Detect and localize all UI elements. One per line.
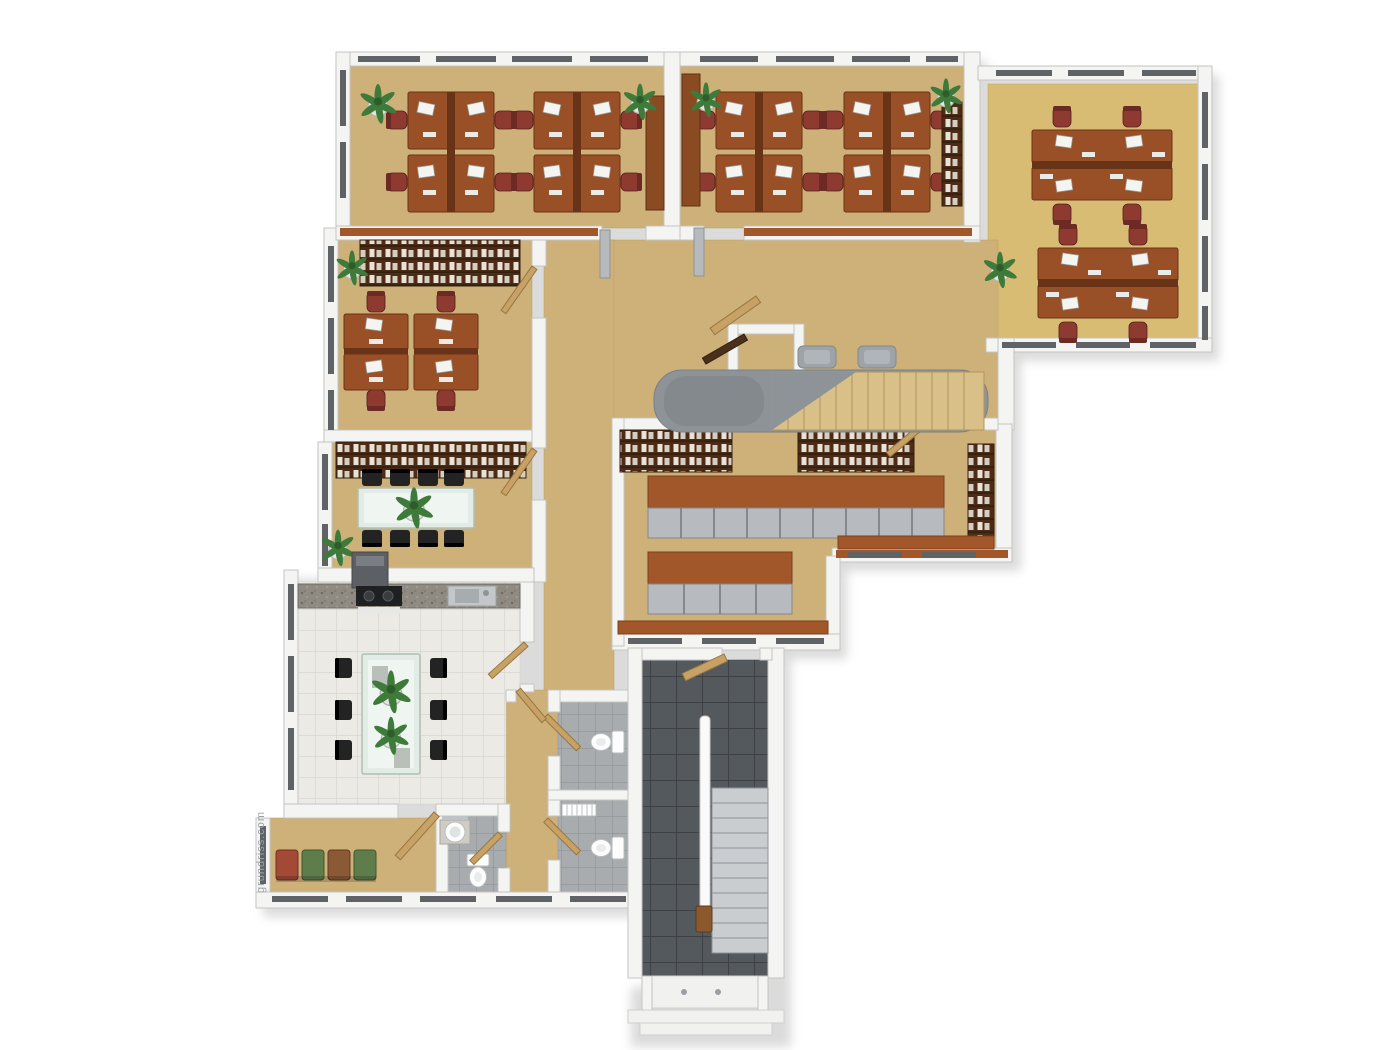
bench-cushion [864, 350, 890, 364]
floor-plan-page: grundriss.com [0, 0, 1400, 1050]
floor-corridor-vertical [544, 240, 614, 700]
placemat [394, 748, 410, 768]
conference-chair [362, 530, 382, 547]
waiting-chair [276, 850, 298, 880]
interior-staircase [654, 370, 988, 432]
bench-cushion [804, 350, 830, 364]
entrance-step [640, 1023, 772, 1035]
dining-chair [430, 740, 447, 760]
watermark-text: grundriss.com [255, 811, 267, 893]
partition-panel [600, 230, 610, 278]
partition-panel [694, 228, 704, 276]
dining-chair [430, 700, 447, 720]
handrail-wall [700, 716, 710, 912]
dining-chair [430, 658, 447, 678]
cooktop [356, 586, 402, 606]
dining-chair [335, 700, 352, 720]
waiting-chair [328, 850, 350, 880]
dining-chair [335, 740, 352, 760]
dining-chair [335, 658, 352, 678]
sideboard [618, 621, 828, 634]
floor-plan-svg: grundriss.com [0, 0, 1400, 1050]
conference-chair [418, 469, 438, 486]
stair-flight [712, 788, 768, 953]
wall-bookshelf [620, 430, 732, 472]
wall-cabinet-trim [744, 228, 972, 236]
cabinet-row-doors [648, 508, 944, 538]
wall-cabinet-trim [340, 228, 598, 236]
wall-bookshelf [968, 444, 994, 548]
bookshelf [942, 102, 962, 206]
chair-shadow [276, 876, 376, 882]
mirror [442, 816, 468, 820]
waiting-chair [354, 850, 376, 880]
conference-chair [444, 530, 464, 547]
tall-cabinet [646, 96, 664, 210]
conference-chair [390, 530, 410, 547]
conference-chair [418, 530, 438, 547]
conference-chair [390, 469, 410, 486]
cabinet-row-top [648, 476, 944, 508]
wall-shelving [360, 240, 520, 286]
entrance-step [628, 1010, 784, 1023]
extractor-hood-top [356, 556, 384, 566]
cabinet-row-top [648, 552, 792, 584]
sideboard [838, 536, 994, 549]
waiting-chair [302, 850, 324, 880]
conference-chair [362, 469, 382, 486]
handrail-post [696, 906, 712, 932]
entry-vestibule [650, 976, 760, 1008]
conference-chair [444, 469, 464, 486]
oven-front [358, 607, 400, 614]
